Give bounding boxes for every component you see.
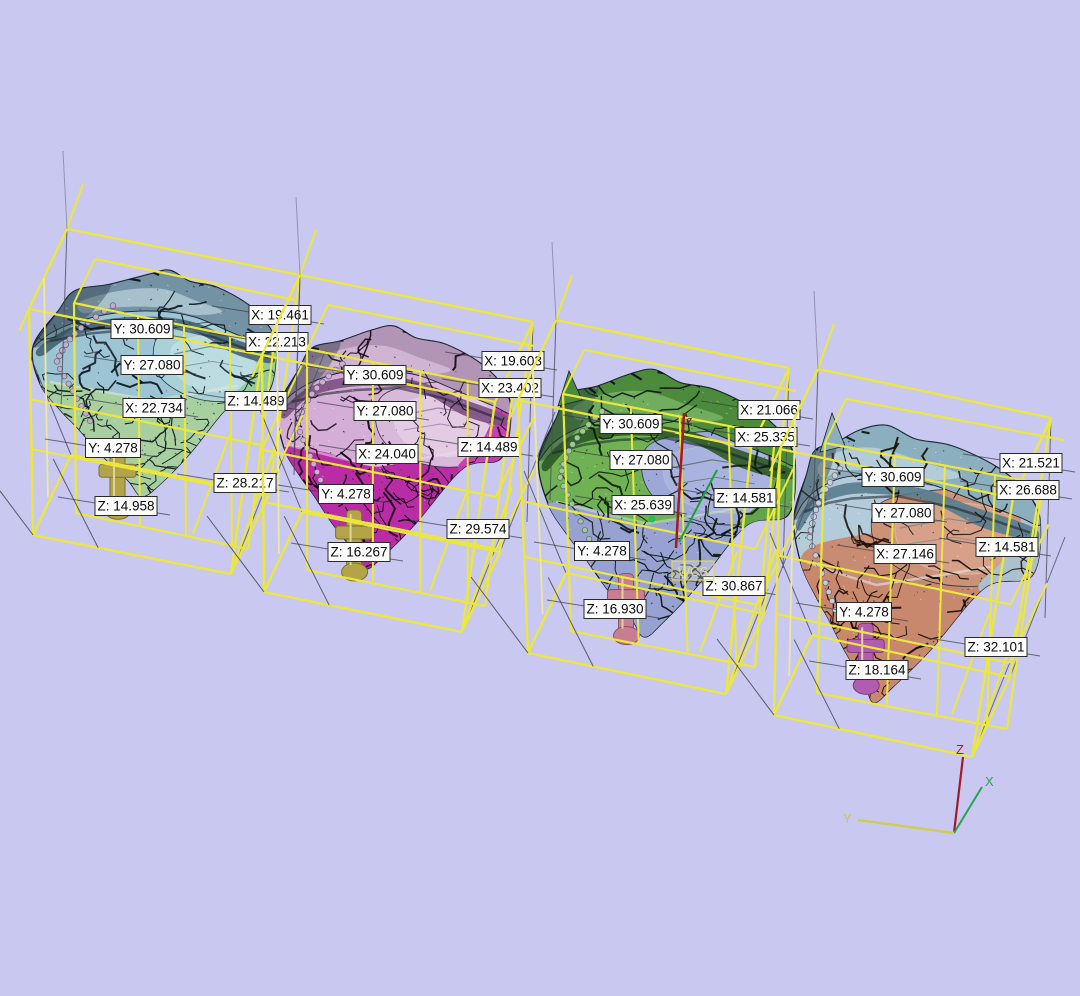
svg-text:Y: 30.609: Y: 30.609: [602, 417, 659, 432]
svg-text:Z: 14.489: Z: 14.489: [460, 440, 517, 455]
svg-text:Z: 16.267: Z: 16.267: [330, 545, 387, 560]
svg-text:Y: 27.080: Y: 27.080: [874, 506, 931, 521]
svg-text:Z: 16.930: Z: 16.930: [586, 602, 643, 617]
svg-text:X: 22.734: X: 22.734: [125, 401, 183, 416]
svg-text:Z: 14.958: Z: 14.958: [97, 499, 154, 514]
svg-text:X: X: [985, 774, 994, 789]
svg-text:Y: 4.278: Y: 4.278: [839, 605, 889, 620]
svg-text:X: 26.688: X: 26.688: [999, 483, 1057, 498]
svg-text:Z: 32.101: Z: 32.101: [967, 640, 1024, 655]
svg-text:X: 27.146: X: 27.146: [876, 547, 934, 562]
svg-text:Z: 18.164: Z: 18.164: [848, 663, 906, 678]
svg-text:Z: 30.867: Z: 30.867: [705, 579, 762, 594]
svg-text:X: 21.066: X: 21.066: [740, 403, 798, 418]
svg-text:Y: 27.080: Y: 27.080: [356, 404, 413, 419]
svg-text:Z: 14.581: Z: 14.581: [978, 540, 1035, 555]
svg-text:X: 25.639: X: 25.639: [614, 498, 672, 513]
svg-text:Y: 4.278: Y: 4.278: [321, 487, 371, 502]
svg-text:Z: Z: [956, 742, 964, 757]
svg-text:Y: 30.609: Y: 30.609: [864, 470, 921, 485]
svg-text:Y: 30.609: Y: 30.609: [113, 322, 170, 337]
svg-text:WCS: WCS: [678, 564, 709, 579]
svg-text:Z: 28.217: Z: 28.217: [216, 476, 273, 491]
svg-text:Z: 14.581: Z: 14.581: [716, 491, 773, 506]
svg-text:Y: 27.080: Y: 27.080: [612, 453, 669, 468]
svg-text:Y: 27.080: Y: 27.080: [123, 358, 180, 373]
svg-text:Y: 4.278: Y: 4.278: [577, 544, 627, 559]
svg-text:Y: 30.609: Y: 30.609: [346, 368, 403, 383]
svg-text:z: z: [687, 415, 693, 427]
svg-text:Z: 29.574: Z: 29.574: [449, 522, 507, 537]
svg-text:Y: 4.278: Y: 4.278: [88, 441, 138, 456]
svg-text:X: 23.402: X: 23.402: [481, 381, 539, 396]
svg-text:X: 24.040: X: 24.040: [358, 447, 416, 462]
svg-text:Z: 14.489: Z: 14.489: [227, 394, 284, 409]
svg-text:X: 21.521: X: 21.521: [1002, 456, 1060, 471]
svg-text:Y: Y: [843, 811, 852, 826]
